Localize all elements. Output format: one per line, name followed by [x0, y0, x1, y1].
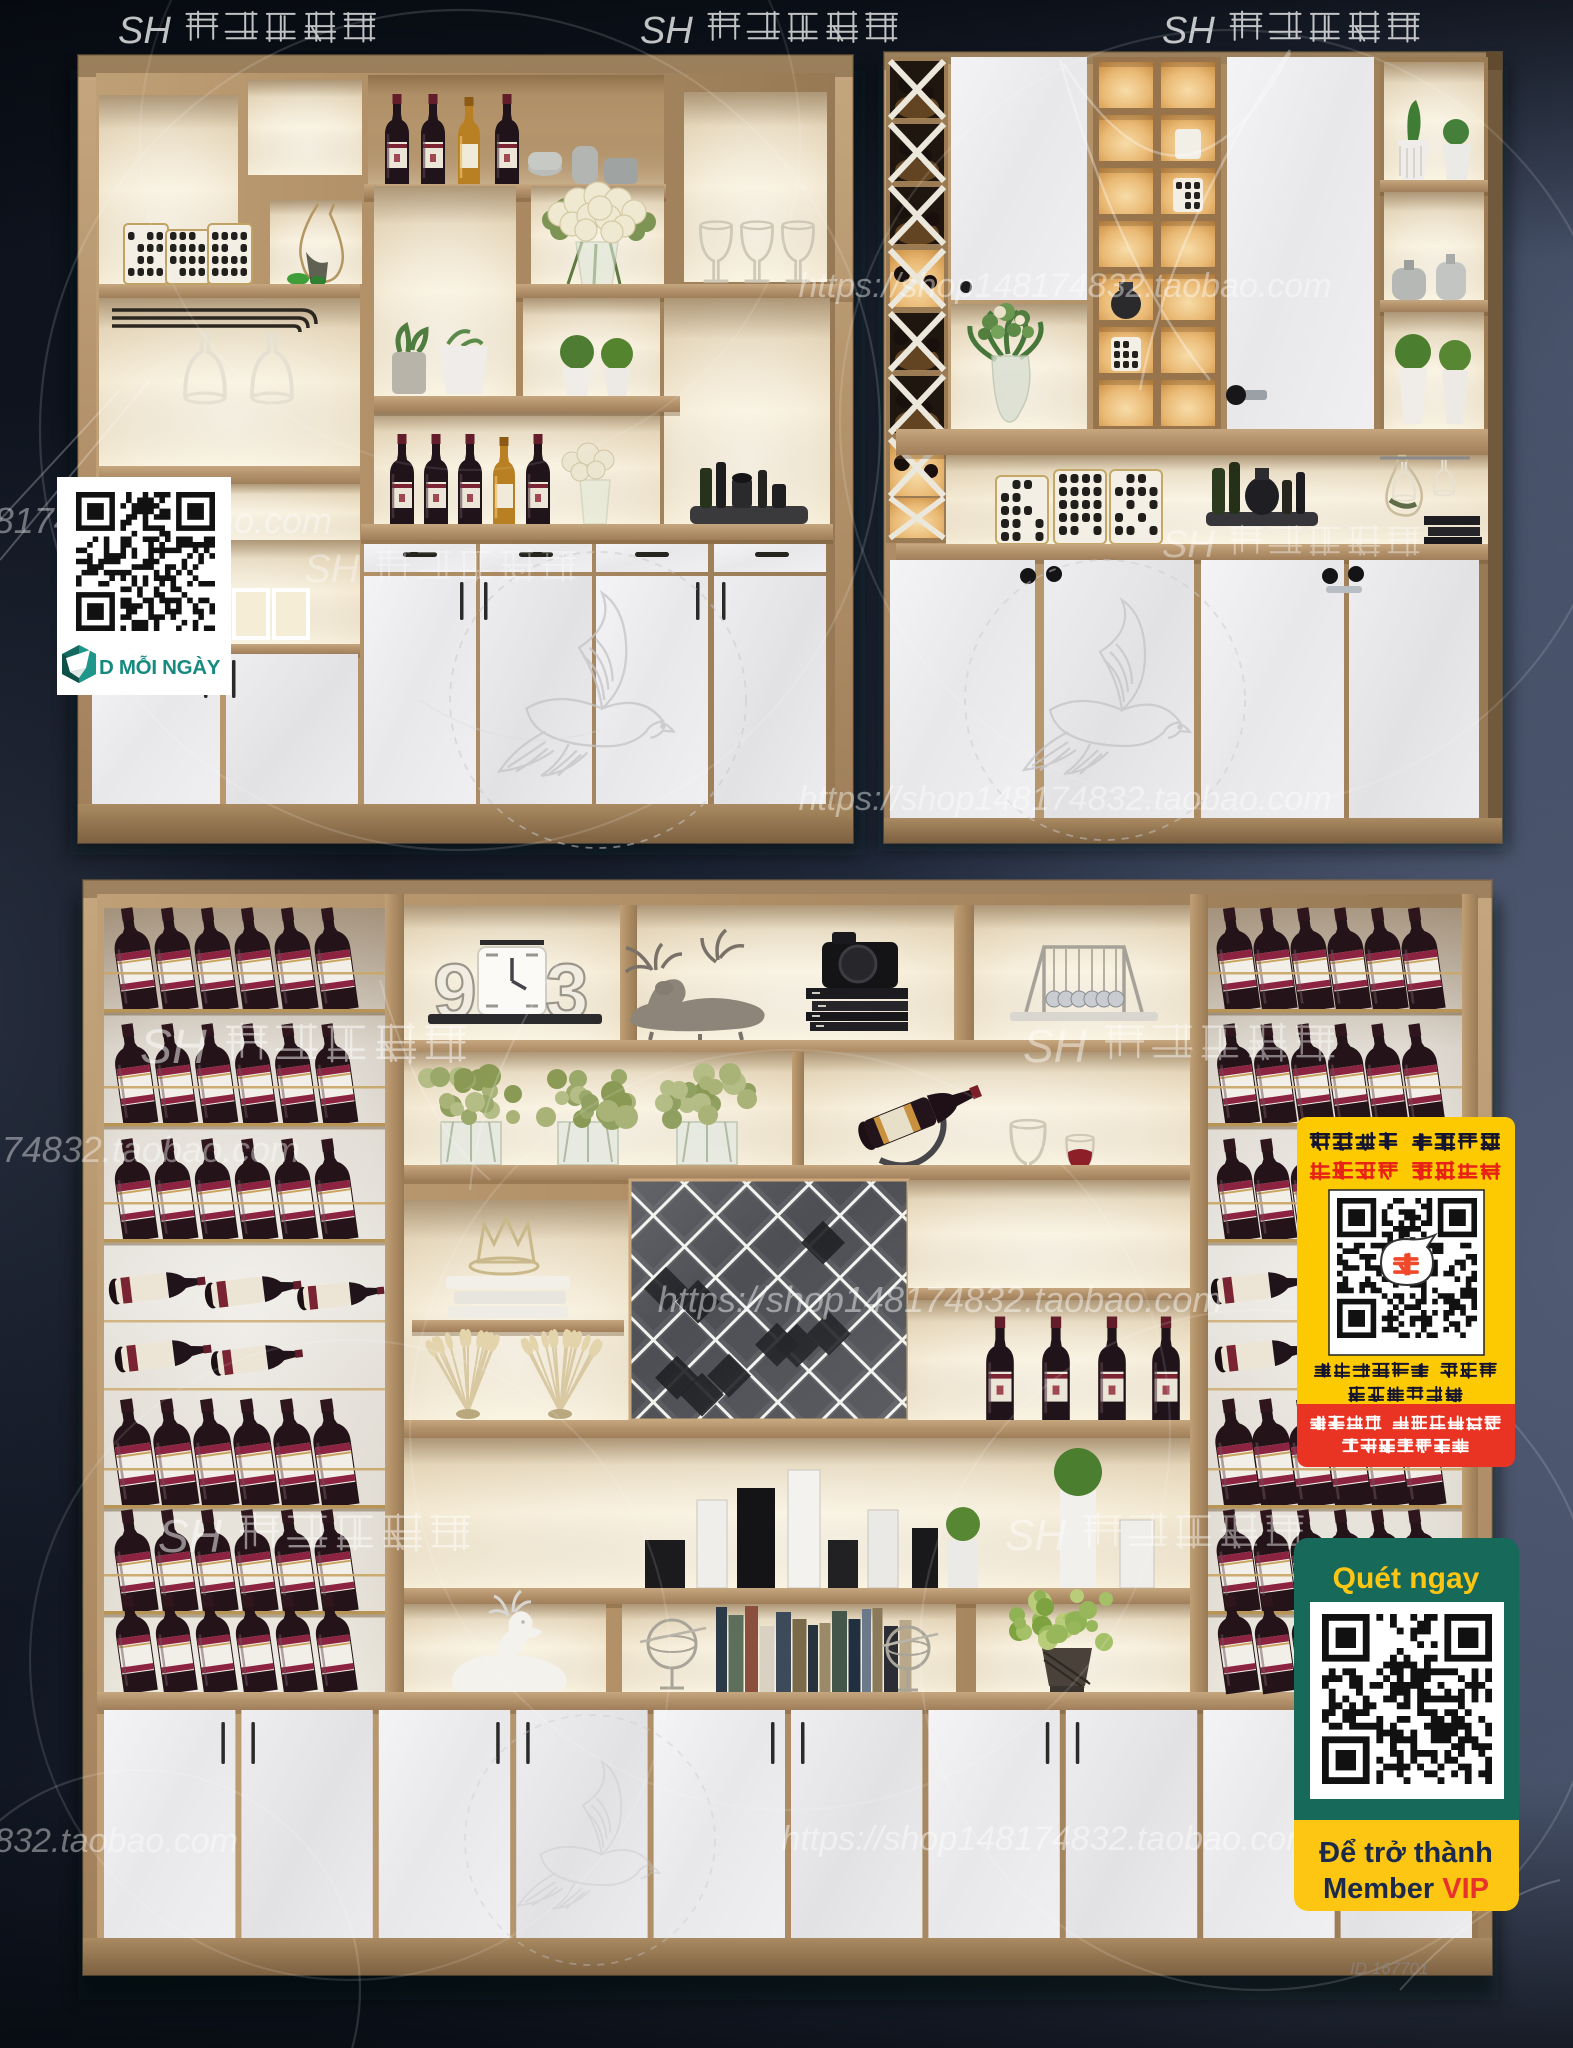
svg-text:SH: SH [158, 1510, 223, 1562]
svg-text:SH: SH [640, 10, 693, 52]
svg-text:https://shop148174832.taobao.c: https://shop148174832.taobao.com [798, 267, 1331, 305]
svg-text:https://shop148174832.taobao.c: https://shop148174832.taobao.com [0, 1129, 300, 1170]
svg-text:https://shop148174832.taobao.c: https://shop148174832.taobao.com [798, 780, 1331, 818]
svg-text:Member VIP: Member VIP [1323, 1873, 1489, 1905]
svg-text:https://shop148174832.taobao.c: https://shop148174832.taobao.com [658, 1279, 1222, 1320]
svg-text:SH: SH [118, 10, 171, 52]
svg-text:SH: SH [1023, 1020, 1088, 1072]
svg-text:SH: SH [304, 547, 360, 591]
svg-text:SH: SH [1162, 524, 1215, 566]
svg-text:SH: SH [140, 1021, 207, 1074]
svg-text:Để trở thành: Để trở thành [1319, 1837, 1493, 1869]
svg-text:SH: SH [1005, 1511, 1066, 1560]
svg-text:SH: SH [1162, 10, 1215, 52]
svg-text:Quét ngay: Quét ngay [1333, 1562, 1480, 1595]
svg-text:https://shop148174832.taobao.c: https://shop148174832.taobao.com [781, 1820, 1314, 1858]
svg-text:ID 167701: ID 167701 [1350, 1959, 1428, 1978]
svg-text:D MỖI NGÀY: D MỖI NGÀY [99, 655, 221, 679]
svg-text:https://shop148174832.taobao.c: https://shop148174832.taobao.com [0, 1822, 238, 1860]
